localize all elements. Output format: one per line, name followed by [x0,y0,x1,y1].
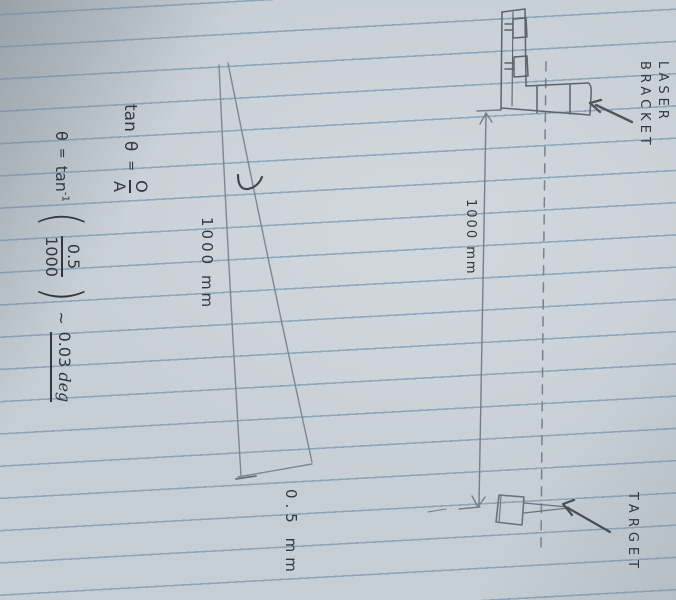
dashed-centerline [541,62,546,548]
inverse-exponent: -1 [60,192,71,202]
theta-token: θ [53,131,72,141]
theta-token: θ [120,141,140,151]
target-label: TARGET [625,492,640,573]
dimension-label: 1000 mm [463,199,478,276]
arctan-token: tan-1 [53,166,72,202]
deg-unit: deg [55,372,74,402]
beam-lines [524,503,568,513]
fraction-bar [61,236,63,277]
triangle-sketch [219,63,312,479]
sketch-overlay [0,0,676,600]
fraction-o-over-a: O A [111,180,150,193]
angle-arc [238,175,262,189]
close-paren: ) [32,286,92,301]
equals-token: = [55,148,70,159]
laser-bracket-label: LASER BRACKET [635,61,671,149]
equals-token: = [123,160,138,171]
fraction-numerator: 0.5 [64,244,82,269]
laser-bracket-label-line1: LASER [653,61,671,149]
target-box [496,495,524,525]
laser-bracket-label-line2: BRACKET [635,61,653,149]
open-paren: ( [32,211,92,226]
fraction-numerator: O [132,180,150,193]
result-value: 0.03 deg [50,332,74,403]
tan-token: tan [120,104,140,132]
formula-theta-result: θ = tan-1 ( 0.5 1000 ) ~ 0.03 deg [32,131,92,402]
triangle-base-label: 0.5 mm [282,489,300,577]
formula-tan-theta: tan θ = O A [111,104,150,193]
fraction-05-over-1000: 0.5 1000 [42,236,81,277]
fraction-denominator: A [111,181,129,192]
fraction-bar [129,180,131,193]
fraction-denominator: 1000 [42,236,60,277]
target-arrow [563,500,610,532]
notebook-page-photo: tan θ = O A θ = tan-1 ( 0.5 1000 ) ~ 0.0… [0,0,676,600]
dimension-line [428,110,500,512]
triangle-side-label: 1000 mm [198,217,216,310]
bracket-arrow [590,100,632,122]
approx-token: ~ [53,311,72,324]
